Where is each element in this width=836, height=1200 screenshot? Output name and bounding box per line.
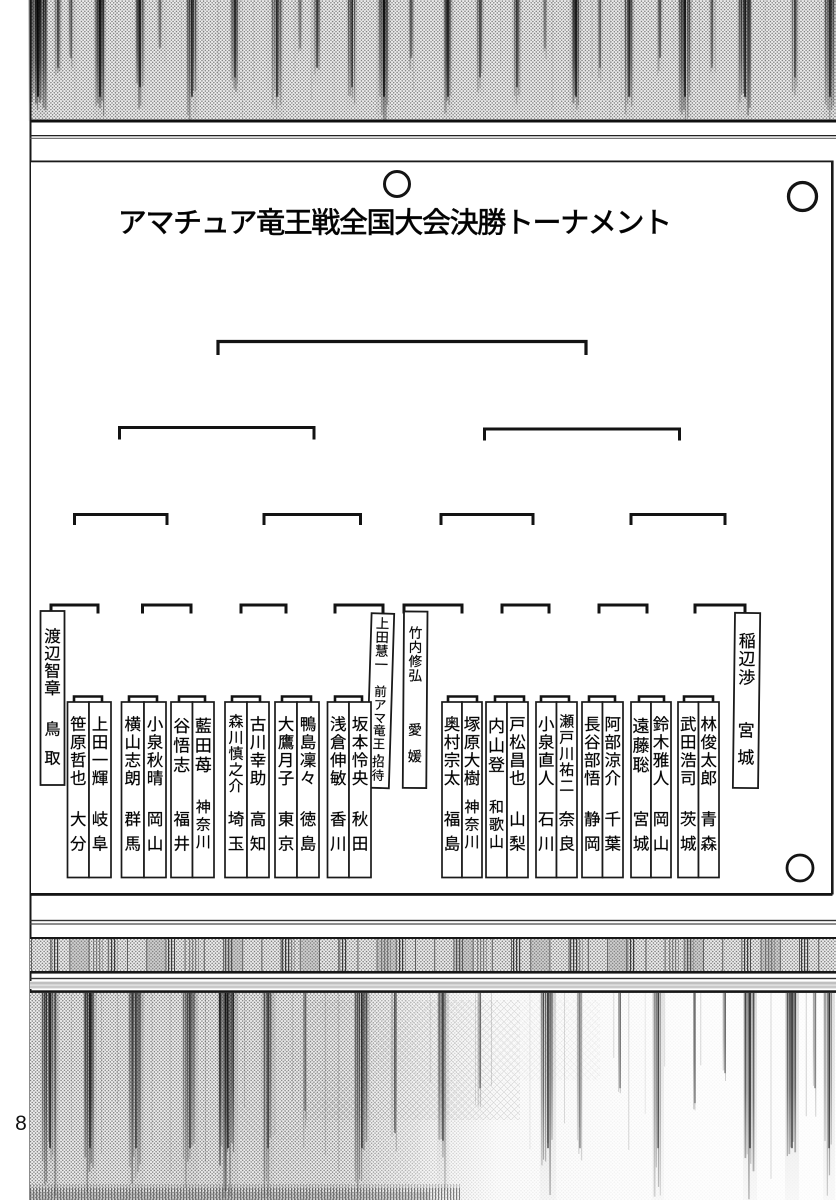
svg-text:8: 8 [15,1112,27,1135]
